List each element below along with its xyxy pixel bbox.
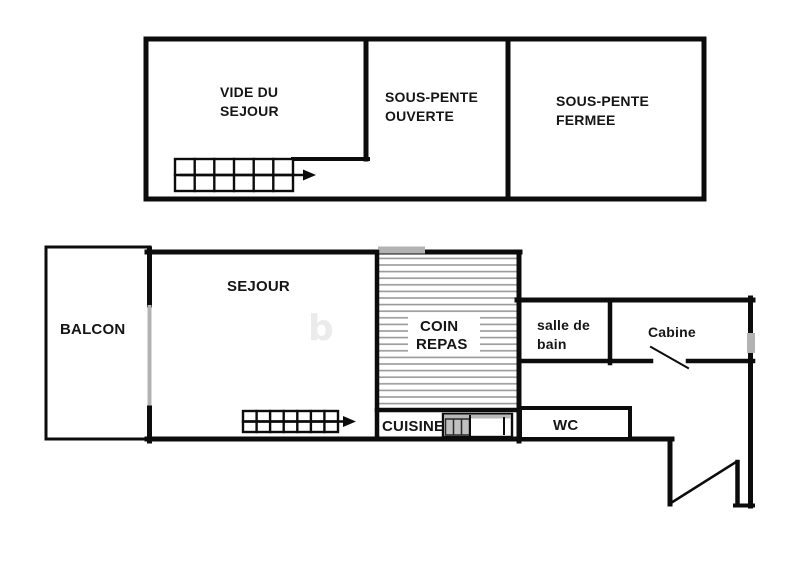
room-label-wc: WC	[553, 417, 578, 434]
window-marker-top-icon	[378, 247, 425, 254]
floor-plan-page: VIDE DU SEJOUR SOUS-PENTE OUVERTE SOUS-P…	[0, 0, 800, 578]
lower-floor-plan: b BALCON SEJOUR COIN REPAS salle de bain…	[46, 247, 755, 507]
room-label-vide-du-sejour-line1: VIDE DU	[220, 84, 278, 100]
room-label-sous-pente-fermee-line2: FERMEE	[556, 112, 616, 128]
kitchen-unit-icon	[443, 414, 512, 437]
room-label-sous-pente-ouverte-line2: OUVERTE	[385, 108, 454, 124]
room-label-salle-de-bain-line2: bain	[537, 336, 567, 352]
upper-floor-plan: VIDE DU SEJOUR SOUS-PENTE OUVERTE SOUS-P…	[146, 39, 704, 199]
cabine-door-swing-icon	[651, 347, 688, 368]
entrance-door-swing-icon	[671, 462, 753, 506]
room-label-sejour: SEJOUR	[227, 278, 290, 295]
room-label-sous-pente-fermee-line1: SOUS-PENTE	[556, 93, 649, 109]
room-label-coin-repas-line2: REPAS	[416, 336, 468, 353]
room-label-cuisine: CUISINE	[382, 418, 444, 435]
window-marker-right-icon	[747, 333, 755, 353]
room-balcon-outline	[46, 247, 150, 439]
watermark: b	[308, 308, 334, 349]
room-label-balcon: BALCON	[60, 321, 125, 338]
floor-plan-svg: VIDE DU SEJOUR SOUS-PENTE OUVERTE SOUS-P…	[0, 0, 800, 578]
room-label-salle-de-bain-line1: salle de	[537, 317, 590, 333]
staircase-lower-icon	[243, 411, 356, 432]
room-label-cabine: Cabine	[648, 324, 696, 340]
room-label-coin-repas-line1: COIN	[420, 318, 458, 335]
room-label-vide-du-sejour-line2: SEJOUR	[220, 103, 279, 119]
room-label-sous-pente-ouverte-line1: SOUS-PENTE	[385, 89, 478, 105]
